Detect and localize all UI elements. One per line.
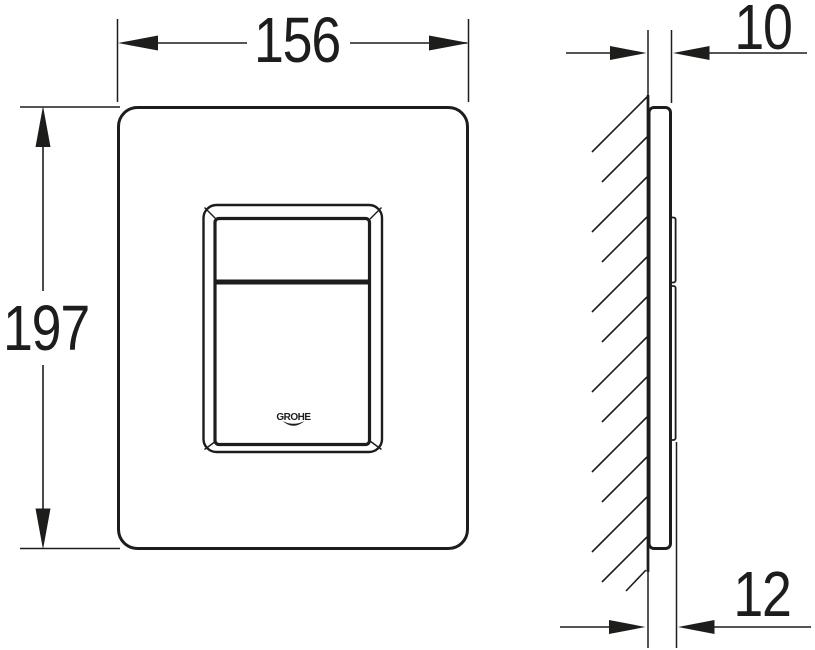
arrowhead-left bbox=[609, 620, 646, 634]
top-thickness-label: 10 bbox=[734, 0, 791, 59]
arrowhead-left bbox=[610, 46, 647, 60]
wall-hatching bbox=[592, 97, 647, 591]
front-view: GROHE bbox=[119, 108, 468, 549]
arrowhead-right bbox=[678, 620, 715, 634]
height-dimension-label: 197 bbox=[3, 296, 89, 360]
side-view bbox=[592, 30, 676, 648]
arrowhead-top bbox=[36, 106, 51, 147]
technical-drawing: GROHE bbox=[0, 0, 815, 650]
side-plate-profile bbox=[649, 108, 671, 549]
grohe-logo-text: GROHE bbox=[276, 412, 311, 423]
bottom-thickness-label: 12 bbox=[733, 562, 790, 626]
arrowhead-left bbox=[118, 36, 158, 51]
drawing-linework: GROHE bbox=[0, 0, 815, 650]
arrowhead-right bbox=[429, 36, 469, 51]
arrowhead-bottom bbox=[36, 509, 51, 550]
plate-outline bbox=[119, 108, 468, 549]
width-dimension-label: 156 bbox=[254, 8, 340, 72]
arrowhead-right bbox=[673, 46, 710, 60]
